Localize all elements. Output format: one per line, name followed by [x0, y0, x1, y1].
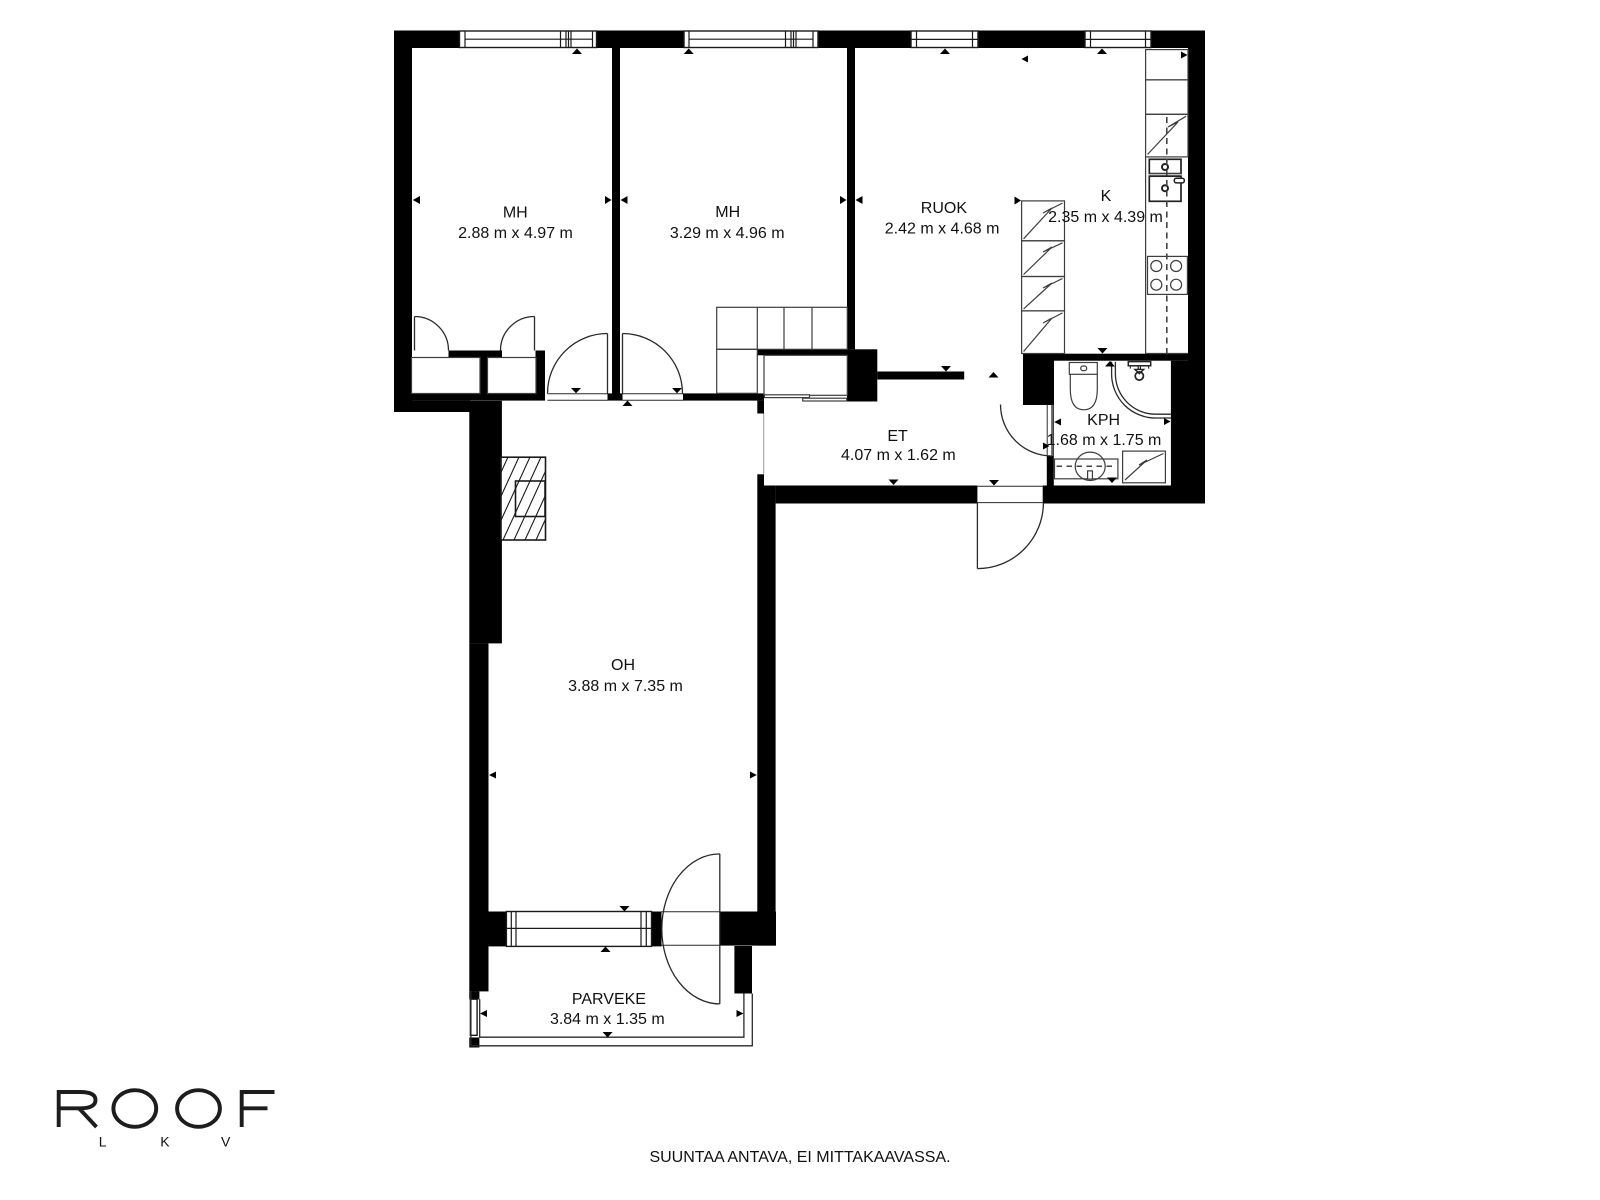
svg-text:4.07 m x 1.62 m: 4.07 m x 1.62 m	[841, 447, 956, 464]
svg-text:SUUNTAA ANTAVA, EI MITTAKAAVAS: SUUNTAA ANTAVA, EI MITTAKAAVASSA.	[649, 1149, 950, 1166]
svg-text:PARVEKE: PARVEKE	[572, 991, 646, 1008]
svg-text:2.42 m x 4.68 m: 2.42 m x 4.68 m	[885, 221, 1000, 238]
svg-text:MH: MH	[503, 205, 528, 222]
svg-text:1.68 m x 1.75 m: 1.68 m x 1.75 m	[1047, 432, 1162, 449]
svg-text:K: K	[160, 1134, 170, 1150]
svg-text:OH: OH	[611, 657, 635, 674]
svg-text:V: V	[221, 1134, 231, 1150]
svg-text:3.88 m x 7.35 m: 3.88 m x 7.35 m	[568, 678, 683, 695]
svg-text:2.88 m x 4.97 m: 2.88 m x 4.97 m	[458, 225, 573, 242]
svg-text:MH: MH	[715, 204, 740, 221]
svg-text:KPH: KPH	[1087, 412, 1120, 429]
svg-text:K: K	[1101, 188, 1112, 205]
svg-text:2.35 m x 4.39 m: 2.35 m x 4.39 m	[1048, 209, 1163, 226]
svg-text:3.29 m x 4.96 m: 3.29 m x 4.96 m	[670, 225, 785, 242]
svg-text:ET: ET	[887, 428, 908, 445]
svg-text:L: L	[99, 1134, 107, 1150]
svg-text:3.84 m x 1.35 m: 3.84 m x 1.35 m	[550, 1011, 665, 1028]
svg-text:RUOK: RUOK	[921, 200, 968, 217]
